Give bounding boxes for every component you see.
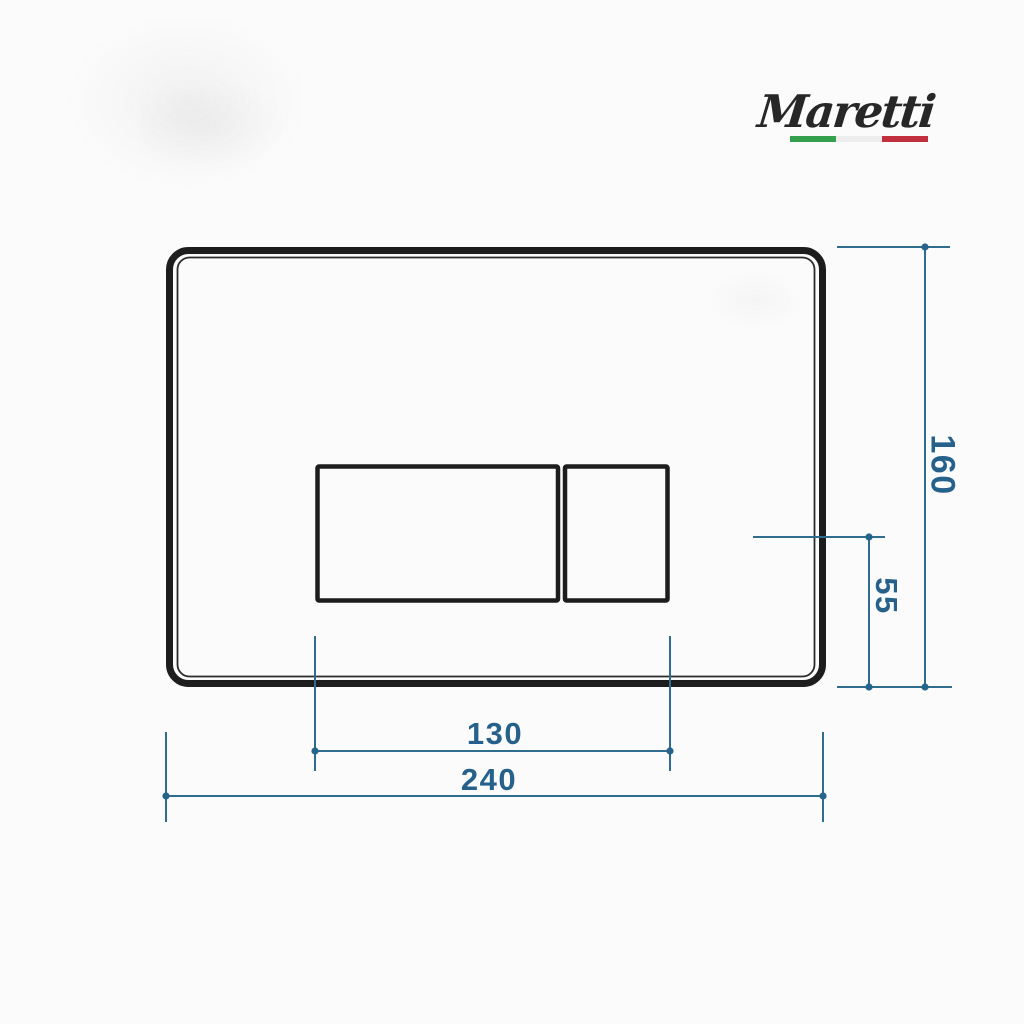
dot-130-right bbox=[666, 747, 673, 754]
dim-label-height-160: 160 bbox=[923, 434, 962, 495]
dim-label-width-240: 240 bbox=[461, 762, 517, 798]
dim-label-buttons-130: 130 bbox=[467, 716, 523, 752]
dot-160-top bbox=[921, 243, 928, 250]
dot-130-left bbox=[311, 747, 318, 754]
large-flush-button bbox=[318, 467, 559, 601]
dot-240-left bbox=[162, 792, 169, 799]
small-flush-button bbox=[565, 467, 668, 601]
dot-55-top bbox=[865, 533, 872, 540]
drawing-canvas: Maretti bbox=[0, 0, 1024, 1024]
flush-plate-drawing bbox=[0, 0, 1024, 1024]
dot-240-right bbox=[819, 792, 826, 799]
dim-label-offset-55: 55 bbox=[868, 577, 904, 614]
dot-160-bottom bbox=[921, 683, 928, 690]
dot-55-bottom bbox=[865, 683, 872, 690]
